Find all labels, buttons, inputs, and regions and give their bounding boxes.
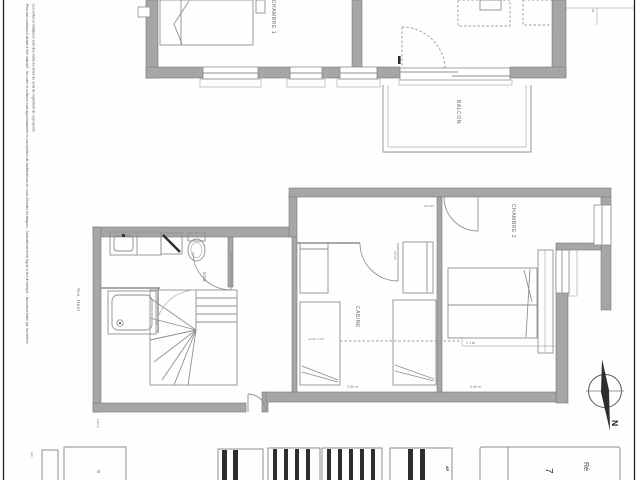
dim-left: 2,96 m bbox=[96, 419, 100, 429]
title-number: 7 bbox=[543, 468, 554, 474]
sliding-door bbox=[400, 68, 510, 80]
label-cabine: CABINE bbox=[354, 306, 360, 328]
faucet-dot bbox=[122, 234, 125, 237]
lower-walls bbox=[93, 188, 611, 412]
title-block-main-cell: 7 Ré bbox=[480, 447, 620, 480]
floor-plan-drawing: Plan non contractuel donné à titre indic… bbox=[0, 0, 640, 480]
partitions bbox=[100, 197, 442, 392]
label-chambre2: CHAMBRE 2 bbox=[510, 204, 516, 239]
left-wall-window bbox=[138, 7, 150, 17]
compass: N bbox=[586, 359, 624, 431]
bathroom: SDB bbox=[108, 232, 231, 334]
cabine-room: PO 05 couch. 0.90 0.90 m CABINE bbox=[300, 242, 460, 389]
bathroom-door bbox=[193, 252, 231, 290]
door-hinge-mark bbox=[398, 56, 401, 64]
side-unit bbox=[538, 250, 553, 353]
nightstand bbox=[256, 0, 265, 13]
label-balcon: BALCON bbox=[455, 100, 461, 124]
upper-walls bbox=[146, 0, 566, 78]
dim-bed: 0.90 m bbox=[347, 385, 358, 389]
balcony: BALCON bbox=[383, 80, 531, 152]
chambre2-door bbox=[444, 197, 478, 231]
closet-left bbox=[300, 243, 328, 293]
chambre2-room: AP 056 h. 1.80 0.40 m CHAMBRE 2 bbox=[424, 197, 556, 389]
disclaimer-line-1: Plan non contractuel donné à titre indic… bbox=[25, 4, 29, 344]
closet-right bbox=[403, 242, 433, 293]
upper-right-room bbox=[398, 0, 553, 68]
upper-right-tag: 05 bbox=[591, 9, 595, 13]
cabine-door bbox=[360, 243, 398, 281]
cabine-door-tag: PO 05 bbox=[393, 251, 397, 260]
lower-plan: SDB bbox=[76, 188, 611, 429]
label-niv-haut: Niv. Haut bbox=[76, 288, 81, 311]
staircase bbox=[150, 290, 237, 385]
bed-chambre2 bbox=[448, 268, 537, 338]
title-block: Ech. S AP 7 bbox=[30, 447, 620, 480]
h180-note: h. 1.80 bbox=[466, 341, 476, 345]
title-prefix: Ré bbox=[582, 462, 589, 471]
chambre2-door-tag: AP 056 bbox=[424, 204, 434, 208]
disclaimer-line-2: Les surfaces indiquées sont des surfaces… bbox=[32, 4, 36, 132]
north-label: N bbox=[610, 420, 620, 426]
upper-right-externals: 05 bbox=[566, 8, 634, 25]
bed-cabine-right bbox=[393, 300, 436, 385]
sink-basin bbox=[114, 236, 133, 251]
floor-plan-sheet: Plan non contractuel donné à titre indic… bbox=[0, 0, 640, 480]
upper-plan: CHAMBRE 1 05 BALCON bbox=[138, 0, 634, 152]
sheet-tag: S bbox=[96, 470, 101, 473]
dashed-door-arc bbox=[402, 27, 445, 68]
scale-bars bbox=[218, 448, 382, 480]
scale-label: Ech. bbox=[30, 452, 34, 458]
upper-windows bbox=[200, 67, 510, 87]
label-chambre1: CHAMBRE 1 bbox=[270, 0, 276, 34]
title-block-ap-cell: AP bbox=[390, 448, 452, 480]
disclaimer-text: Plan non contractuel donné à titre indic… bbox=[25, 4, 36, 344]
bed-note: couch. 0.90 bbox=[308, 337, 324, 341]
compass-needle bbox=[601, 359, 610, 431]
bed-cabine-left bbox=[300, 302, 340, 385]
ap-tag: AP bbox=[445, 466, 449, 472]
dim-right: 0.40 m bbox=[470, 385, 481, 389]
shower bbox=[108, 291, 156, 334]
